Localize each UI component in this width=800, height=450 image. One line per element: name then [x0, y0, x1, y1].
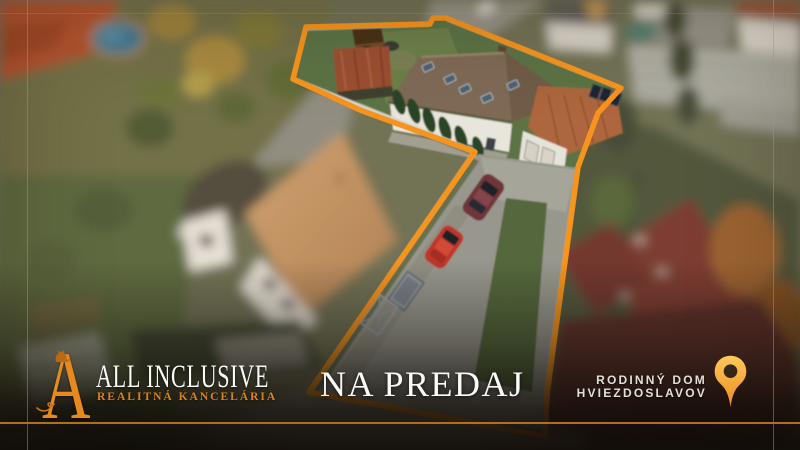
frame-line-left	[27, 0, 28, 450]
property-location: HVIEZDOSLAVOV	[577, 387, 707, 400]
real-estate-banner: A ALL INCLUSIVE REALITNÁ KANCELÁRIA NA P…	[0, 0, 800, 450]
agency-tagline: REALITNÁ KANCELÁRIA	[97, 392, 277, 404]
cat-silhouette-icon	[53, 347, 71, 363]
footer-divider-line	[0, 422, 800, 424]
agency-name: ALL INCLUSIVE	[96, 361, 269, 394]
listing-status: NA PREDAJ	[320, 366, 525, 402]
frame-line-top	[0, 13, 800, 14]
location-pin-icon	[714, 355, 747, 408]
location-block: RODINNÝ DOM HVIEZDOSLAVOV	[577, 374, 707, 400]
flourish-icon	[36, 400, 58, 414]
frame-line-right	[773, 0, 774, 450]
